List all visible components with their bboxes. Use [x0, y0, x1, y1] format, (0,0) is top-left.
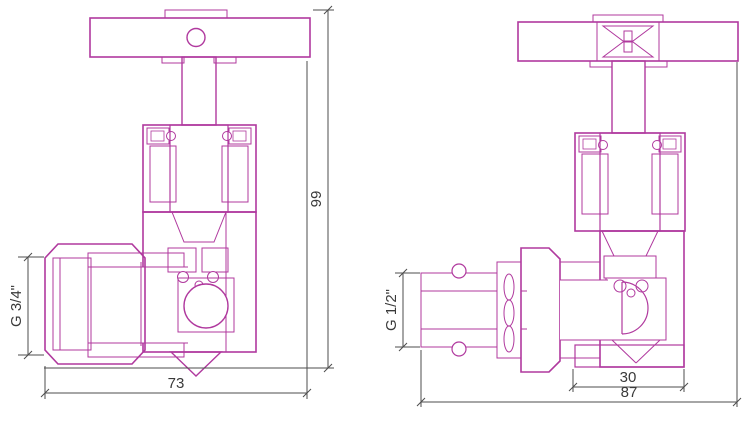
right-oring-top: [452, 264, 466, 278]
left-valve-body: [88, 212, 256, 376]
left-valve-drawing: 99 73 G 3/4": [8, 6, 334, 399]
dimension-label-99: 99: [308, 191, 325, 208]
left-drain-spout: [171, 352, 221, 376]
dimension-label-g34: G 3/4": [8, 285, 25, 327]
right-union-nut: [521, 248, 560, 372]
right-bonnet: [575, 133, 685, 231]
right-inlet-fitting: [421, 248, 608, 372]
left-oring: [167, 132, 176, 141]
left-valve-handle: [90, 10, 310, 63]
right-valve-stem: [612, 61, 645, 133]
dimension-label-73: 73: [168, 375, 185, 392]
left-valve-stem: [182, 57, 216, 125]
dimension-label-g12: G 1/2": [383, 289, 400, 331]
right-dimension-thread: G 1/2": [383, 269, 420, 351]
left-dimension-thread: G 3/4": [8, 253, 44, 359]
right-dimension-87: 87: [417, 62, 741, 407]
left-dimension-73: 73: [41, 61, 311, 399]
valve-technical-drawing: 99 73 G 3/4": [0, 0, 750, 422]
drawing-svg: 99 73 G 3/4": [0, 0, 750, 422]
handle-screw-top: [603, 26, 653, 41]
right-valve-handle: [518, 15, 738, 67]
handle-screw-bottom: [603, 42, 653, 57]
left-handle-hole: [187, 29, 205, 47]
right-seal-packing: [604, 256, 656, 278]
left-valve-ball: [184, 284, 228, 328]
right-oring-bottom: [452, 342, 466, 356]
dimension-label-87: 87: [621, 384, 638, 401]
right-valve-drawing: G 1/2" 30 87: [383, 15, 741, 407]
left-bonnet: [143, 125, 256, 212]
